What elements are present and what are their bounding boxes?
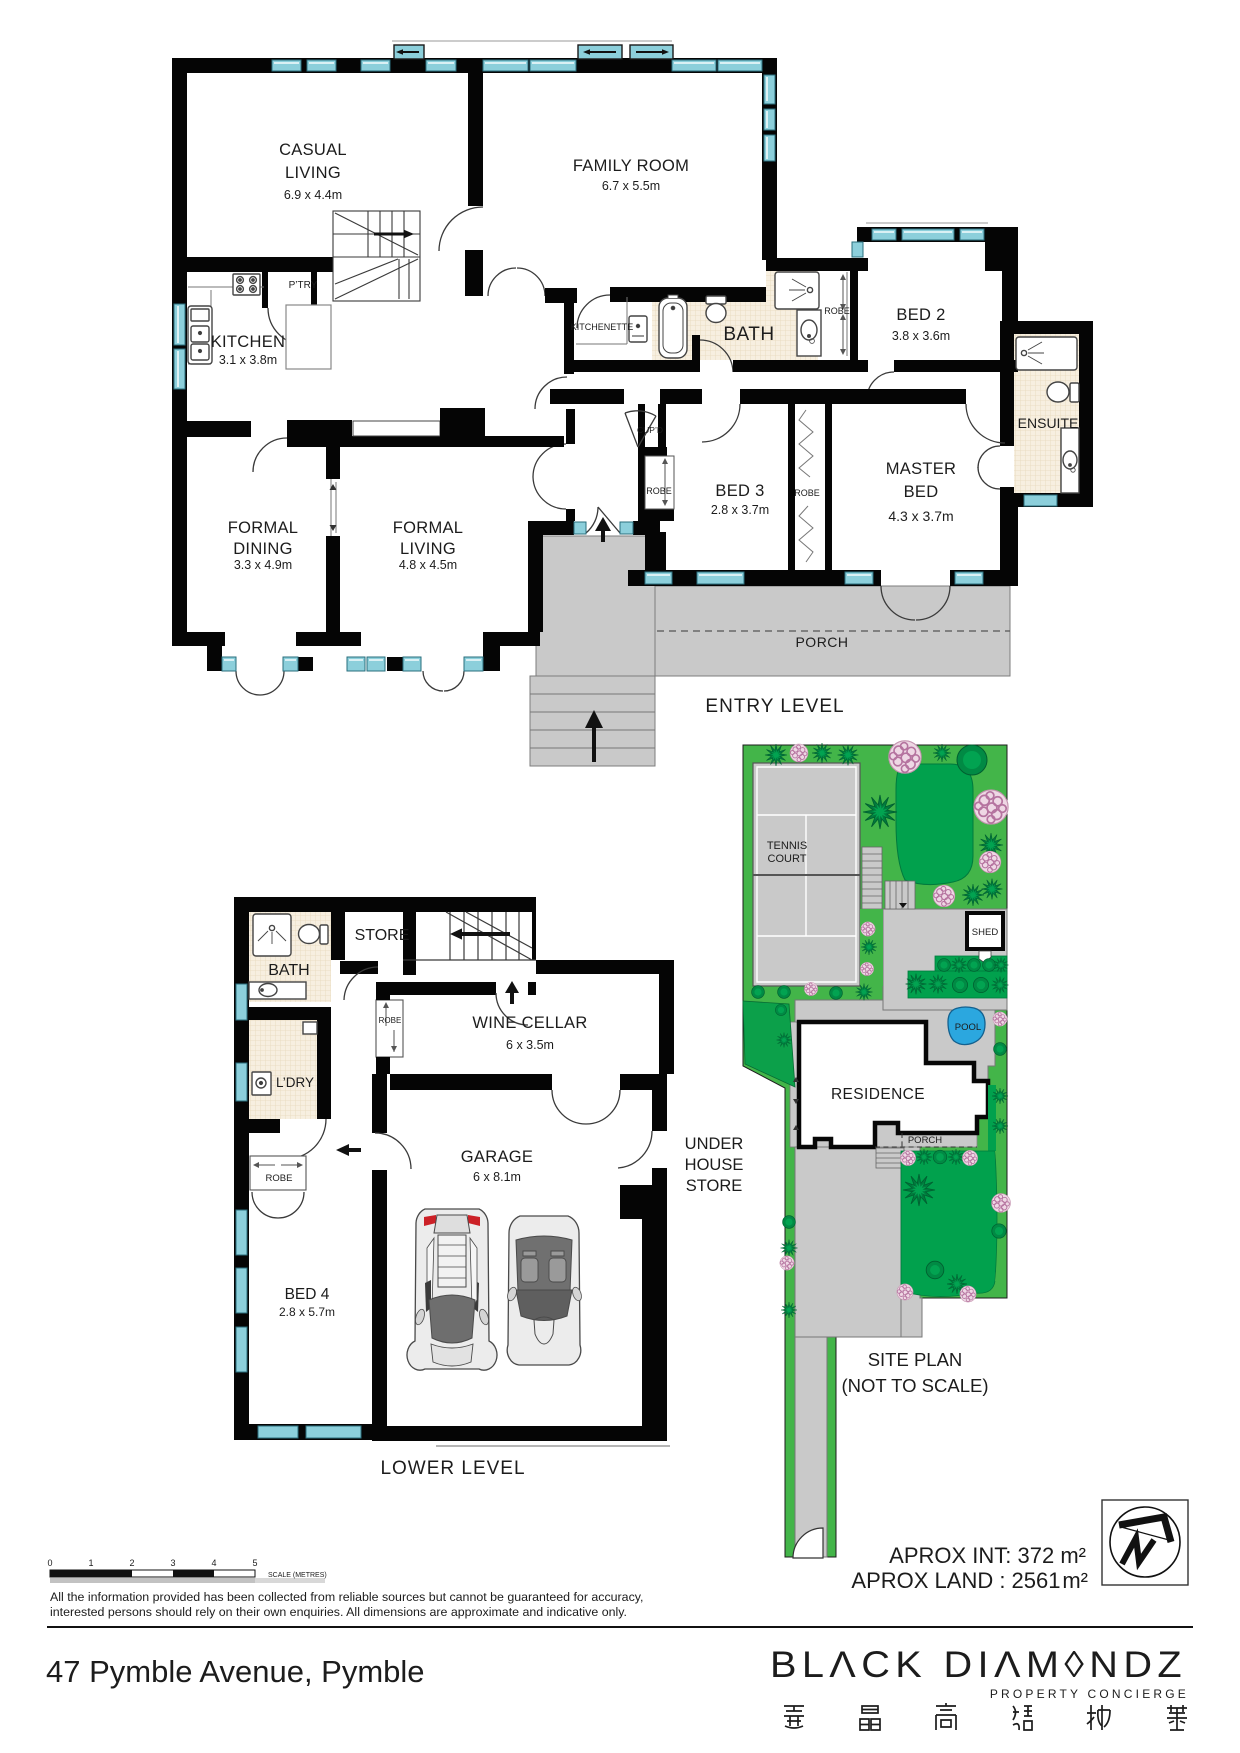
svg-text:SITE PLAN: SITE PLAN <box>868 1349 963 1370</box>
svg-text:KITCHEN: KITCHEN <box>211 333 286 351</box>
svg-text:ROBE: ROBE <box>794 488 820 498</box>
svg-text:CUP’D: CUP’D <box>637 425 663 435</box>
svg-text:6 x 3.5m: 6 x 3.5m <box>506 1038 554 1052</box>
svg-text:SHED: SHED <box>972 927 999 938</box>
svg-text:interested persons should rely: interested persons should rely on their … <box>50 1605 627 1619</box>
svg-text:6.9 x 4.4m: 6.9 x 4.4m <box>284 188 342 202</box>
svg-text:6.7 x 5.5m: 6.7 x 5.5m <box>602 179 660 193</box>
svg-text:L’DRY: L’DRY <box>276 1075 314 1090</box>
svg-text:UNDER: UNDER <box>685 1135 744 1153</box>
svg-text:PORCH: PORCH <box>908 1135 942 1146</box>
svg-text:BATH: BATH <box>723 324 774 345</box>
svg-text:APROX LAND : 2561 m²: APROX LAND : 2561 m² <box>851 1568 1088 1593</box>
svg-text:RESIDENCE: RESIDENCE <box>831 1086 925 1103</box>
svg-text:3.3 x 4.9m: 3.3 x 4.9m <box>234 558 292 572</box>
svg-text:MASTER: MASTER <box>886 460 957 478</box>
svg-text:CASUAL: CASUAL <box>279 141 347 159</box>
svg-text:ENSUITE: ENSUITE <box>1018 415 1079 431</box>
svg-text:COURT: COURT <box>768 853 807 865</box>
svg-text:KITCHENETTE: KITCHENETTE <box>571 322 634 332</box>
svg-text:2.8 x 3.7m: 2.8 x 3.7m <box>711 503 769 517</box>
svg-text:All the information provided h: All the information provided has been co… <box>50 1590 644 1604</box>
svg-text:1: 1 <box>88 1558 93 1568</box>
svg-text:BED 2: BED 2 <box>896 306 945 324</box>
svg-text:FORMAL: FORMAL <box>228 519 299 537</box>
svg-text:STORE: STORE <box>355 927 410 944</box>
svg-text:ROBE: ROBE <box>266 1173 293 1184</box>
svg-text:ROBE: ROBE <box>379 1016 402 1025</box>
svg-text:2.8 x 5.7m: 2.8 x 5.7m <box>279 1305 335 1319</box>
svg-text:BED: BED <box>904 483 939 501</box>
svg-text:47 Pymble Avenue, Pymble: 47 Pymble Avenue, Pymble <box>46 1654 425 1689</box>
svg-text:ROBE: ROBE <box>824 306 850 316</box>
svg-text:SCALE (METRES): SCALE (METRES) <box>268 1572 327 1579</box>
svg-text:BED 4: BED 4 <box>285 1286 330 1303</box>
svg-text:3.8 x 3.6m: 3.8 x 3.6m <box>892 329 950 343</box>
svg-text:4.8 x 4.5m: 4.8 x 4.5m <box>399 558 457 572</box>
svg-text:ENTRY LEVEL: ENTRY LEVEL <box>705 696 844 717</box>
svg-text:4.3 x 3.7m: 4.3 x 3.7m <box>888 508 953 524</box>
svg-text:WINE CELLAR: WINE CELLAR <box>472 1014 587 1032</box>
svg-text:PROPERTY CONCIERGE: PROPERTY CONCIERGE <box>990 1687 1189 1701</box>
svg-text:BATH: BATH <box>268 962 309 979</box>
svg-text:LIVING: LIVING <box>400 540 456 558</box>
svg-text:6 x 8.1m: 6 x 8.1m <box>473 1170 521 1184</box>
svg-text:4: 4 <box>211 1558 216 1568</box>
svg-text:POOL: POOL <box>955 1022 981 1033</box>
svg-text:0: 0 <box>47 1558 52 1568</box>
svg-text:PORCH: PORCH <box>795 634 848 650</box>
svg-text:BED 3: BED 3 <box>715 482 764 500</box>
svg-text:TENNIS: TENNIS <box>767 840 807 852</box>
svg-text:LOWER LEVEL: LOWER LEVEL <box>380 1458 525 1479</box>
svg-text:3.1 x 3.8m: 3.1 x 3.8m <box>219 353 277 367</box>
svg-text:STORE: STORE <box>686 1177 743 1195</box>
svg-text:FAMILY ROOM: FAMILY ROOM <box>573 157 689 175</box>
svg-text:LIVING: LIVING <box>285 164 341 182</box>
svg-text:BLΛCK DIΛM◊NDZ: BLΛCK DIΛM◊NDZ <box>770 1644 1187 1685</box>
svg-text:2: 2 <box>129 1558 134 1568</box>
svg-text:ROBE: ROBE <box>646 486 672 496</box>
svg-text:5: 5 <box>252 1558 257 1568</box>
svg-text:P’TRY: P’TRY <box>289 280 318 291</box>
svg-text:3: 3 <box>170 1558 175 1568</box>
svg-text:DINING: DINING <box>233 540 293 558</box>
svg-text:(NOT TO SCALE): (NOT TO SCALE) <box>841 1375 988 1396</box>
svg-text:GARAGE: GARAGE <box>461 1148 533 1166</box>
svg-text:HOUSE: HOUSE <box>685 1156 744 1174</box>
svg-text:FORMAL: FORMAL <box>393 519 464 537</box>
svg-text:APROX INT: 372 m²: APROX INT: 372 m² <box>889 1543 1086 1568</box>
